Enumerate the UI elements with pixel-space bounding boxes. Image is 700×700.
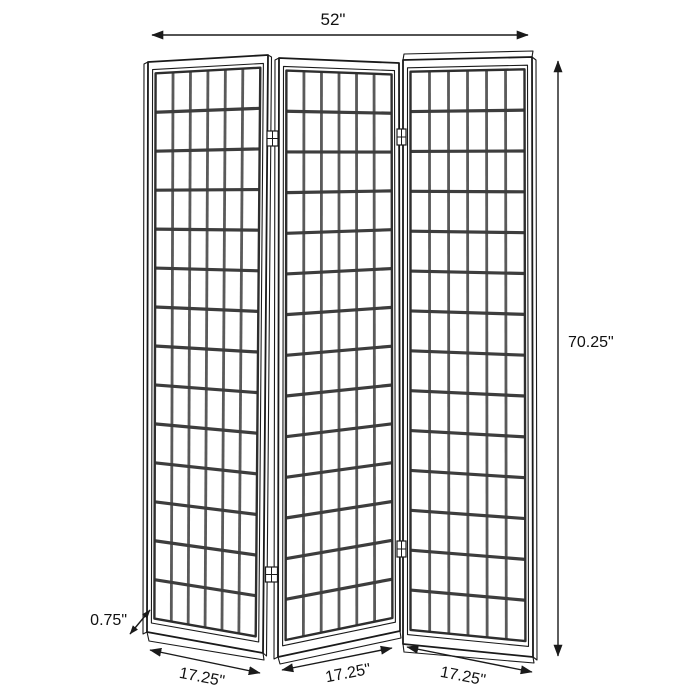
grid-bar-horizontal: [410, 191, 524, 192]
panel-width-label-right: 17.25": [439, 664, 487, 689]
overall-width-label: 52": [321, 10, 346, 29]
overall-width-dimension: 52": [152, 10, 528, 35]
room-divider-dimension-diagram: 52" 70.25" 0.75" 17.25" 17.25" 17.25": [0, 0, 700, 700]
panel-thickness-dimension: 0.75": [90, 610, 150, 634]
overall-height-dimension: 70.25": [558, 61, 614, 656]
panel-middle: [274, 58, 401, 664]
panel-left: [143, 55, 272, 660]
panel-right: [403, 51, 537, 663]
diagram-canvas: 52" 70.25" 0.75" 17.25" 17.25" 17.25": [0, 0, 700, 700]
grid-bar-horizontal: [410, 231, 524, 232]
panel-width-label-middle: 17.25": [324, 661, 372, 686]
grid-bar-horizontal: [410, 110, 524, 111]
panel-width-label-left: 17.25": [178, 665, 226, 690]
overall-height-label: 70.25": [568, 334, 614, 351]
grid-bar-horizontal: [155, 149, 259, 151]
grid-bar-horizontal: [286, 191, 392, 193]
grid-bar-horizontal: [286, 111, 391, 113]
grid-bar-horizontal: [155, 190, 259, 191]
panel-thickness-label: 0.75": [90, 612, 127, 629]
grid-bar-horizontal: [155, 229, 259, 230]
